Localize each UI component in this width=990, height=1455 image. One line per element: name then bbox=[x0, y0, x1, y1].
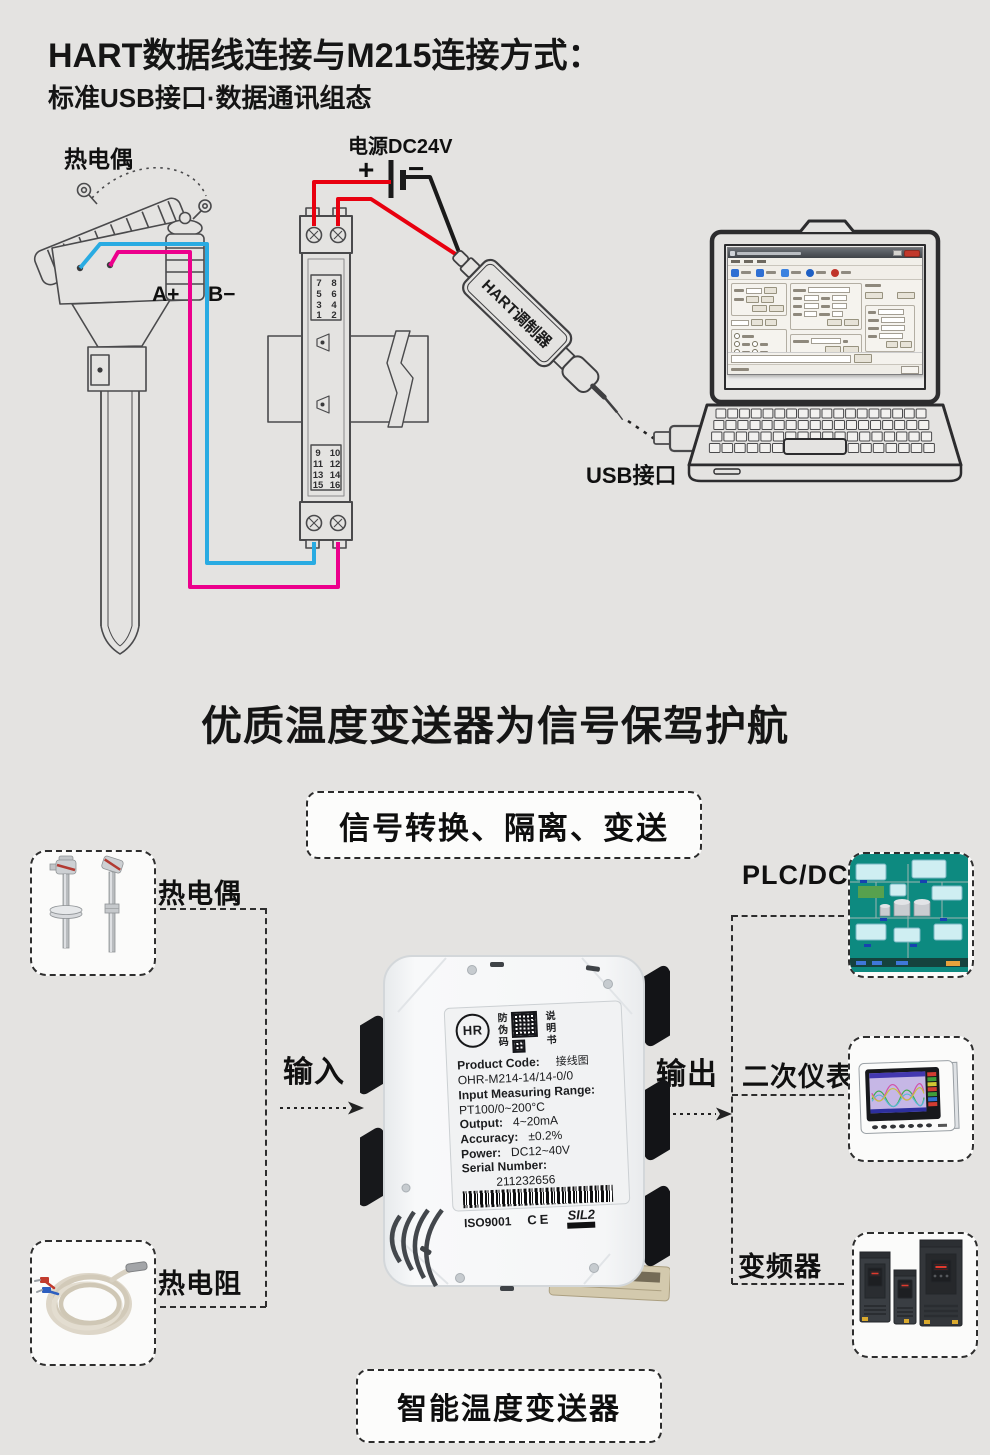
connector-line bbox=[160, 1306, 266, 1308]
terminal-number: 11 bbox=[313, 459, 324, 470]
connector-line bbox=[732, 915, 844, 917]
laptop-latch bbox=[800, 221, 854, 232]
connector-line bbox=[732, 1094, 844, 1096]
brand-logo: HR bbox=[455, 1013, 490, 1048]
terminal-number: 12 bbox=[330, 459, 341, 470]
dest-label-vfd: 变频器 bbox=[738, 1245, 822, 1284]
software-toolbar bbox=[728, 266, 922, 280]
a-plus-label: A+ bbox=[152, 283, 179, 306]
input-label: 输入 bbox=[283, 1047, 345, 1091]
terminal-number: 9 bbox=[315, 448, 320, 459]
terminal-number: 5 bbox=[316, 289, 322, 300]
rail-break-mark bbox=[387, 331, 413, 427]
terminal-number: 2 bbox=[331, 310, 336, 321]
page: HART数据线连接与M215连接方式： 标准USB接口·数据通讯组态 bbox=[0, 0, 990, 1455]
product-label-sticker: HR 防伪码 说明书 Product Code: 接线图 OHR-M214-14… bbox=[444, 1000, 631, 1212]
signal-module: 7 8 5 6 3 4 1 2 9 10 11 12 13 bbox=[300, 208, 352, 548]
toolbar-icon bbox=[806, 269, 814, 277]
paperless-recorder-photo bbox=[850, 1038, 968, 1156]
toolbar-icon bbox=[731, 269, 739, 277]
scada-screen-photo bbox=[850, 854, 968, 972]
power-wire-black bbox=[404, 177, 462, 260]
power-supply-symbol bbox=[391, 160, 403, 198]
manual-label: 说明书 bbox=[543, 1010, 555, 1046]
sil-chip bbox=[568, 1222, 596, 1229]
iso-cert: ISO9001 bbox=[464, 1214, 512, 1231]
software-titlebar bbox=[728, 248, 922, 258]
terminal-number: 15 bbox=[313, 480, 324, 491]
signal-banner: 信号转换、隔离、变送 bbox=[306, 791, 702, 859]
antifake-label: 防伪码 bbox=[495, 1012, 507, 1048]
accuracy-value: ±0.2% bbox=[528, 1128, 563, 1144]
terminal-number: 16 bbox=[330, 480, 341, 491]
ce-mark: CE bbox=[527, 1212, 552, 1229]
software-close-button bbox=[904, 250, 920, 257]
rtd-photo bbox=[32, 1242, 150, 1360]
source-label-thermocouple: 热电偶 bbox=[158, 872, 242, 911]
wiring-diagram: 7 8 5 6 3 4 1 2 9 10 11 12 13 bbox=[0, 120, 990, 680]
hart-modulator: HART调制器 bbox=[441, 238, 641, 433]
terminal-number: 8 bbox=[331, 278, 336, 289]
signal-banner-text: 信号转换、隔离、变送 bbox=[339, 803, 669, 848]
software-title-placeholder bbox=[737, 252, 801, 255]
usb-port-label: USB接口 bbox=[586, 463, 676, 488]
dest-label-secondary-instrument: 二次仪表 bbox=[742, 1055, 854, 1094]
qr-code-icon bbox=[512, 1039, 526, 1053]
plc-dcs-photo-box bbox=[848, 852, 974, 978]
toolbar-icon bbox=[831, 269, 839, 277]
laptop-front-edge bbox=[689, 465, 961, 481]
brand-logo-text: HR bbox=[462, 1022, 482, 1039]
terminal-number: 6 bbox=[331, 289, 336, 300]
source-label-rtd: 热电阻 bbox=[158, 1262, 242, 1301]
sil-badge: SIL2 bbox=[567, 1208, 595, 1222]
qr-code-icon bbox=[511, 1011, 538, 1038]
terminal-number: 1 bbox=[316, 310, 322, 321]
cap-open-dotted-line bbox=[92, 168, 206, 198]
software-statusbar bbox=[728, 364, 922, 374]
rtd-photo-box bbox=[30, 1240, 156, 1366]
config-software-window bbox=[727, 247, 923, 375]
terminal-number: 10 bbox=[330, 448, 341, 459]
laptop-touchpad bbox=[784, 439, 846, 454]
connector-line bbox=[160, 908, 266, 910]
thermocouple-drawing bbox=[32, 168, 211, 654]
plus-sign: + bbox=[358, 154, 374, 185]
thermocouple-photo-box bbox=[30, 850, 156, 976]
wiring-diagram-label: 接线图 bbox=[556, 1055, 590, 1070]
vfd-drives-photo bbox=[854, 1234, 972, 1352]
b-minus-label: B− bbox=[208, 283, 235, 306]
minus-sign: − bbox=[408, 153, 424, 184]
footer-banner: 智能温度变送器 bbox=[356, 1369, 662, 1443]
software-menubar bbox=[728, 258, 922, 266]
software-bottom-bar bbox=[728, 352, 922, 364]
terminal-number: 7 bbox=[316, 278, 321, 289]
connector-line bbox=[732, 1283, 844, 1285]
page-subtitle: 标准USB接口·数据通讯组态 bbox=[48, 78, 372, 115]
connector-line bbox=[265, 908, 267, 1307]
software-app-icon bbox=[730, 251, 735, 256]
recorder-photo-box bbox=[848, 1036, 974, 1162]
slogan-title: 优质温度变送器为信号保驾护航 bbox=[0, 692, 990, 752]
connector-line bbox=[731, 915, 733, 1284]
page-title: HART数据线连接与M215连接方式： bbox=[48, 28, 601, 77]
thermocouple-photo bbox=[32, 852, 150, 970]
software-form-area bbox=[728, 280, 922, 352]
usb-cable-dashed-link bbox=[628, 421, 656, 440]
transmitter-product-image: HR 防伪码 说明书 Product Code: 接线图 OHR-M214-14… bbox=[360, 948, 670, 1312]
vfd-photo-box bbox=[852, 1232, 978, 1358]
input-arrow bbox=[278, 1099, 366, 1117]
thermocouple-label: 热电偶 bbox=[64, 146, 133, 172]
toolbar-icon bbox=[756, 269, 764, 277]
footer-banner-text: 智能温度变送器 bbox=[397, 1384, 621, 1428]
software-minimize-button bbox=[893, 250, 902, 256]
toolbar-icon bbox=[781, 269, 789, 277]
power-spec-value: DC12~40V bbox=[511, 1142, 571, 1159]
